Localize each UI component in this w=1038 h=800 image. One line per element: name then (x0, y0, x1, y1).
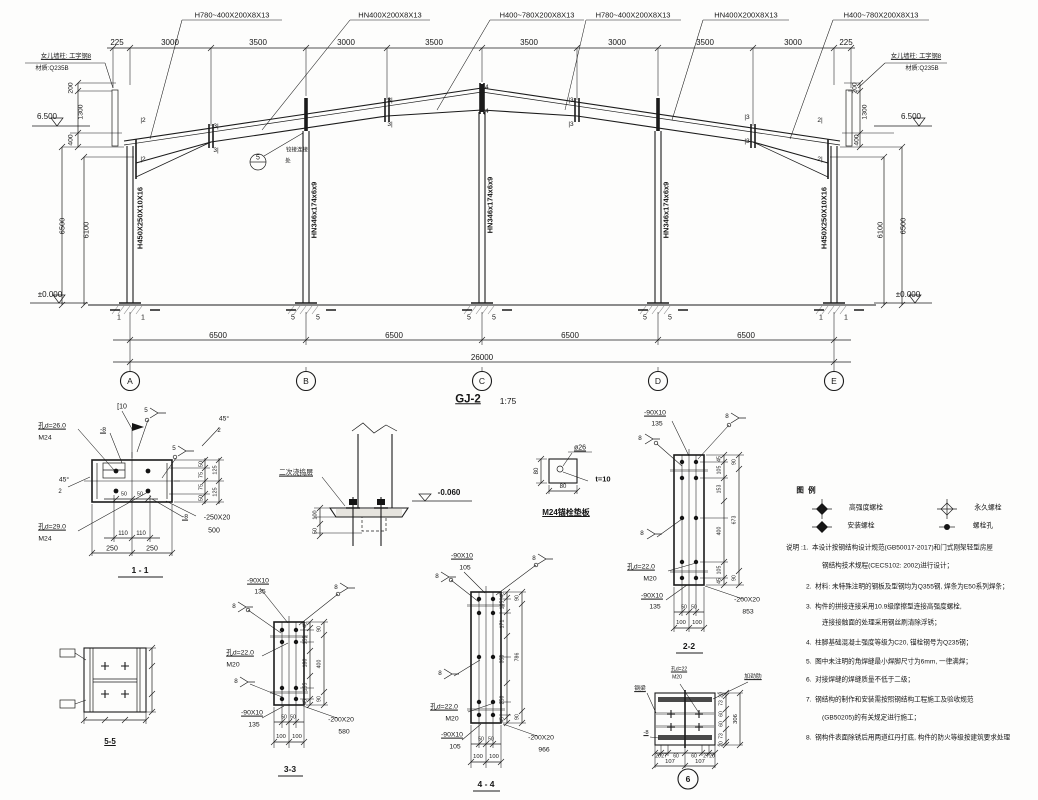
d6-dim-306: 306 (734, 714, 740, 724)
d22-dim-105-a: 105 (717, 466, 722, 475)
d44-dim-b100-a: 100 (473, 755, 483, 761)
notes-note-1a: 说明 :1. 本设计按钢结构设计规范(GB50017-2017)和门式刚架轻型房… (786, 546, 993, 553)
d33-plate-200x20: -200X20 (328, 718, 354, 725)
d44-weld-8-b: 8 (532, 556, 536, 562)
right-dim-400: 400 (855, 134, 862, 145)
dbase-level-minus-060: -0.060 (438, 489, 461, 497)
d44-plate-200x20: -200X20 (528, 736, 554, 743)
d33-dim-b50-b: 50 (290, 715, 296, 720)
frame-column-b-label: HN346x174x6x9 (310, 182, 318, 239)
d11-dim-50-b: 50 (199, 495, 205, 501)
top-beam-label-4: H780~400X200X8X13 (596, 11, 671, 19)
right-dim-6500: 6500 (899, 218, 907, 235)
legend-legend-title: 图 例 (796, 486, 815, 494)
notes-note-8: 8. 钢构件表面除锈后用两道红丹打底, 构件的防火等级按建筑要求处理 (806, 736, 1010, 743)
frame-cut-1a: 1 (117, 315, 121, 322)
d11-plate-8-b: -8 (182, 515, 188, 522)
frame-grid-b: B (303, 377, 309, 386)
d11-channel-10: [10 (117, 404, 127, 411)
d33-dim-90-b: 90 (317, 696, 322, 702)
frame-callout-num: 5 (256, 155, 260, 162)
d11-dim-250-a: 250 (106, 546, 118, 553)
notes-note-5: 5. 图中未注明的角焊缝最小焊脚尺寸为6mm, 一律满焊； (806, 660, 972, 667)
frame-mark-3c: 3| (387, 98, 392, 105)
d22-plate-200x20: -200X20 (734, 598, 760, 605)
frame-drawing-title: GJ-2 (455, 394, 481, 406)
d11-dim-110-b: 110 (136, 531, 146, 537)
drawing-sheet: H780~400X200X8X13HN400X200X8X13H400~780X… (0, 0, 1038, 800)
dm24-dim-80-left: 80 (534, 468, 540, 475)
d44-dim-105-a: 105 (500, 601, 505, 610)
frame-mark-3e: |3 (568, 98, 573, 105)
legend-legend-install-bolt: 安装螺栓 (847, 524, 874, 531)
right-level-base: ±0.000 (896, 291, 920, 299)
d33-dim-b100-b: 100 (292, 735, 302, 741)
d11-weld-5-b: 5 (172, 446, 176, 452)
top-top-dim-6: 3000 (608, 39, 626, 47)
dm24-hole-dia-26: ø26 (574, 445, 586, 452)
dbase-dim-50: 50 (313, 528, 319, 534)
frame-mark-3g: |3 (744, 115, 749, 122)
d33-plate-90x10-bot: -90X10 (241, 711, 263, 718)
d6-plate-8: -8 (643, 731, 648, 737)
detail-6 (647, 682, 748, 789)
d33-dim-155-a: 155 (303, 636, 308, 645)
left-level-eave: 6.500 (37, 113, 57, 121)
frame-cut-1c: 1 (819, 315, 823, 322)
d11-plate-250x20: -250X20 (204, 515, 230, 522)
d22-dim-400: 400 (717, 527, 722, 536)
d6-dim-r60-a: 60 (720, 711, 725, 717)
d33-dim-180: 180 (303, 659, 308, 668)
frame-cut-5e: 5 (643, 315, 647, 322)
dbase-grout-label: 二次浇捣层 (279, 471, 313, 478)
frame-column-d-label: HN346x174x6x9 (662, 182, 670, 239)
d33-plate-135-bot: 135 (248, 723, 259, 730)
d44-title-4-4: 4 - 4 (477, 780, 494, 789)
frame-grid-c: C (479, 377, 485, 386)
d6-beam-label: 钢梁 (634, 687, 646, 693)
frame-cut-5b: 5 (316, 315, 320, 322)
d6-hole-22: 孔d=22 (671, 668, 687, 673)
d6-dim-r73-a: 73 (720, 700, 725, 706)
top-top-dim-2: 3500 (249, 39, 267, 47)
d11-dim-75-b: 75 (199, 484, 205, 490)
d33-dim-b100-a: 100 (276, 735, 286, 741)
d44-dim-90-t: 90 (515, 595, 520, 601)
dm24-dim-80-bottom: 80 (560, 484, 567, 490)
d22-dim-105-b: 105 (717, 566, 722, 575)
frame-bay-dim-1: 6500 (209, 332, 227, 340)
left-dim-6100: 6100 (82, 222, 90, 239)
d33-weld-8-c: 8 (234, 679, 238, 685)
top-beam-label-3: H400~780X200X8X13 (500, 11, 575, 19)
d22-plate-135-top: 135 (651, 422, 662, 429)
d6-title-6: 6 (686, 775, 691, 784)
d44-plate-90x10-bot: -90X10 (441, 733, 463, 740)
frame-bay-dim-3: 6500 (561, 332, 579, 340)
d22-dim-673: 673 (732, 516, 737, 525)
legend-legend-perm-bolt: 永久螺栓 (974, 506, 1001, 513)
left-dim-1300: 1300 (79, 104, 86, 119)
frame-cut-5c: 5 (467, 315, 471, 322)
d44-weld-8-a: 8 (435, 574, 439, 580)
d22-title-2-2: 2-2 (683, 642, 695, 651)
dm24-title-m24-plate: M24锚栓垫板 (542, 509, 590, 517)
legend-symbols (812, 499, 957, 533)
d44-plate-105-bot: 105 (449, 745, 460, 752)
frame-cut-5d: 5 (492, 315, 496, 322)
frame-mark-3h: |3 (744, 139, 749, 146)
d11-dim-g50-a: 50 (121, 492, 127, 497)
frame-total-dim: 26000 (471, 354, 493, 362)
frame-mark-2b: |2 (140, 157, 145, 164)
frame-bay-dim-4: 6500 (737, 332, 755, 340)
d11-dim-250-b: 250 (146, 546, 158, 553)
frame-mark-4b: |4 (483, 109, 488, 116)
d44-dim-b50-b: 50 (488, 737, 494, 742)
notes-note-3a: 3. 构件的拼接连接采用10.9级摩擦型连接高强度螺栓, (806, 605, 962, 612)
d44-dim-90-b: 90 (515, 714, 520, 720)
d11-hole-26: 孔d=26.0 (38, 424, 66, 431)
top-top-dim-1: 3000 (161, 39, 179, 47)
d44-dim-45-a: 45 (500, 592, 505, 598)
d11-title-1-1: 1 - 1 (131, 566, 148, 575)
top-top-dim-225-r: 225 (839, 39, 852, 47)
frame-grid-e: E (831, 377, 837, 386)
right-dim-200: 200 (853, 82, 860, 93)
frame-drawing-scale: 1:75 (500, 397, 517, 406)
d55-title-5-5: 5-5 (104, 738, 116, 746)
d44-dim-b50-a: 50 (478, 737, 484, 742)
frame-column-c-label: HN346x174x6x9 (486, 177, 494, 234)
right-parapet-note-1: 女儿墙柱: 工字钢8 (891, 54, 941, 60)
frame-cut-5f: 5 (668, 315, 672, 322)
frame-mark-4a: |4 (483, 85, 488, 92)
right-column-e-label: H450X250X10X16 (820, 187, 828, 249)
d33-plate-580: 580 (338, 730, 349, 737)
d11-bolt-m24-b: M24 (38, 537, 51, 544)
d22-plate-853: 853 (742, 610, 753, 617)
d6-bolt-m20: M20 (672, 676, 682, 681)
frame-mark-2d: 2| (817, 157, 822, 164)
left-parapet-note-1: 女儿墙柱: 工字钢8 (41, 54, 91, 60)
d44-plate-90x10-top: -90X10 (451, 554, 473, 561)
d22-dim-45-a: 45 (717, 456, 722, 462)
d6-dim-r20-a: 20 (720, 692, 725, 698)
d44-dim-786: 786 (515, 653, 520, 662)
left-dim-6500: 6500 (58, 218, 66, 235)
notes-note-7a: 7. 钢结构的制作和安装需按照钢结构工程施工及验收规范 (806, 698, 973, 705)
d22-dim-b100-b: 100 (692, 621, 702, 627)
d22-dim-b100-a: 100 (676, 621, 686, 627)
d33-dim-45-a: 45 (303, 622, 308, 628)
frame-grid-d: D (655, 377, 661, 386)
frame-cut-5a: 5 (291, 315, 295, 322)
d33-dim-45-b: 45 (303, 699, 308, 705)
left-parapet-note-2: 材质:Q235B (35, 66, 68, 72)
top-beam-label-2: HN400X200X8X13 (358, 11, 421, 19)
left-level-base: ±0.000 (38, 291, 62, 299)
frame-mark-2a: |2 (140, 118, 145, 125)
d11-angle-45-a: 45° (219, 417, 229, 424)
frame-cut-1b: 1 (141, 315, 145, 322)
d11-dim-g50-b: 50 (137, 492, 143, 497)
d11-plate-500: 500 (208, 528, 220, 535)
d6-dim-20-b: 20 (709, 755, 715, 760)
detail-column-base (314, 423, 472, 546)
d22-plate-90x10-top: -90X10 (644, 411, 666, 418)
d22-dim-b50-b: 50 (691, 605, 697, 610)
d33-dim-90-t: 90 (317, 626, 322, 632)
d44-dim-45-b: 45 (500, 717, 505, 723)
d44-dim-250: 250 (500, 696, 505, 705)
d22-dim-b50-a: 50 (681, 605, 687, 610)
top-top-dim-5: 3500 (520, 39, 538, 47)
notes-note-1b: 钢结构技术规程(CECS102: 2002)进行设计； (822, 564, 953, 571)
notes-note-2: 2. 材料: 未特殊注明的钢板及型钢均为Q355钢, 焊条为E50系列焊条； (806, 585, 1009, 592)
notes-note-6: 6. 对接焊缝的焊缝质量不低于二级； (806, 678, 914, 685)
d11-weld-5-a: 5 (144, 408, 148, 414)
right-dim-6100: 6100 (876, 222, 884, 239)
frame-bay-dim-2: 6500 (385, 332, 403, 340)
detail-2-2 (645, 413, 746, 653)
d44-hole-22: 孔d=22.0 (430, 705, 458, 712)
d6-dim-107-b: 107 (695, 760, 705, 766)
d44-weld-8-c: 8 (438, 671, 442, 677)
d44-dim-350: 350 (500, 655, 505, 664)
d11-dim-75-a: 75 (199, 472, 205, 478)
d22-weld-8-c: 8 (640, 531, 644, 537)
frame-mark-3f: |3 (568, 122, 573, 129)
d11-angle-45-b2: 2 (58, 489, 61, 495)
d22-dim-45-b: 45 (717, 578, 722, 584)
d6-dim-20-a: 20 (655, 755, 661, 760)
right-parapet-note-2: 材质:Q235B (905, 66, 938, 72)
d6-dim-r60-b: 60 (720, 721, 725, 727)
top-top-dim-8: 3000 (784, 39, 802, 47)
d33-hole-22: 孔d=22.0 (226, 651, 254, 658)
top-beam-label-6: H400~780X200X8X13 (844, 11, 919, 19)
d44-plate-966: 966 (538, 748, 549, 755)
left-dim-400: 400 (69, 134, 76, 145)
top-beam-label-5: HN400X200X8X13 (714, 11, 777, 19)
notes-note-4: 4. 柱脚基础混凝土强度等级为C20, 锚栓钢号为Q235钢； (806, 641, 972, 648)
dbase-dim-100: 100 (313, 510, 319, 519)
frame-mark-3d: 3| (387, 122, 392, 129)
detail-3-3 (238, 583, 355, 776)
d22-bolt-m20: M20 (643, 577, 656, 584)
d22-plate-90x10-bot: -90X10 (641, 594, 663, 601)
d11-dim-125-a: 125 (213, 465, 219, 474)
d11-dim-50-a: 50 (199, 461, 205, 467)
d11-bolt-m24-a: M24 (38, 436, 51, 443)
frame-mark-2c: 2| (817, 118, 822, 125)
d33-dim-155-b: 155 (303, 683, 308, 692)
d22-weld-8-a: 8 (725, 414, 729, 420)
d44-bolt-m20: M20 (445, 717, 458, 724)
frame-mark-3a: 3| (213, 124, 218, 131)
d11-angle-45-b: 45° (59, 478, 69, 485)
legend-legend-hs-bolt: 高强度螺栓 (849, 506, 883, 513)
d33-title-3-3: 3-3 (284, 765, 296, 774)
d6-stiffener-label: 加劲肋 (744, 675, 761, 681)
d22-dim-153: 153 (717, 485, 722, 494)
d11-plate-8-a: -8 (100, 428, 106, 435)
d6-dim-r73-b: 73 (720, 733, 725, 739)
frame-mark-3b: 3| (213, 148, 218, 155)
d22-hole-22: 孔d=22.0 (627, 565, 655, 572)
d33-bolt-m20: M20 (226, 663, 239, 670)
left-dim-200: 200 (69, 82, 76, 93)
d22-dim-90-t: 90 (732, 459, 737, 465)
d44-dim-b100-b: 100 (489, 755, 499, 761)
d44-dim-171: 171 (500, 620, 505, 629)
top-top-dim-3: 3000 (337, 39, 355, 47)
legend-legend-bolt-hole: 螺栓孔 (973, 524, 993, 531)
left-column-a-label: H450X250X10X16 (136, 187, 144, 249)
frame-callout-text-2: 处 (285, 159, 291, 165)
d22-plate-135-bot: 135 (649, 605, 660, 612)
top-top-dim-4: 3500 (425, 39, 443, 47)
d22-dim-90-b: 90 (732, 575, 737, 581)
top-top-dim-225-l: 225 (110, 39, 123, 47)
d6-dim-r20-b: 20 (720, 741, 725, 747)
d33-dim-400: 400 (317, 660, 322, 669)
notes-note-7b: (GB50205)的有关规定进行施工； (822, 716, 920, 723)
d33-dim-b50-a: 50 (281, 715, 287, 720)
d11-hole-29: 孔d=29.0 (38, 525, 66, 532)
right-level-eave: 6.500 (901, 113, 921, 121)
frame-grid-a: A (127, 377, 133, 386)
d33-plate-90x10-top: -90X10 (247, 579, 269, 586)
right-dim-1300: 1300 (863, 104, 870, 119)
d33-weld-8-b: 8 (232, 604, 236, 610)
d22-weld-8-b: 8 (638, 436, 642, 442)
detail-5-5 (60, 645, 156, 724)
notes-note-3b: 连接接触面的处理采用钢丝刷清除浮锈； (822, 621, 941, 628)
frame-cut-1d: 1 (844, 315, 848, 322)
d6-dim-107-a: 107 (665, 760, 675, 766)
top-beam-label-1: H780~400X200X8X13 (195, 11, 270, 19)
d44-plate-105-top: 105 (459, 566, 470, 573)
d11-dim-110-a: 110 (118, 531, 128, 537)
d33-weld-8-a: 8 (334, 585, 338, 591)
d11-dim-125-b: 125 (213, 487, 219, 496)
d11-angle-45-a2: 2 (217, 428, 220, 434)
d33-plate-135-top: 135 (254, 590, 265, 597)
top-top-dim-7: 3500 (696, 39, 714, 47)
frame-callout-text-1: 铰接连接 (286, 148, 308, 154)
dm24-thickness-t10: t=10 (595, 475, 610, 483)
